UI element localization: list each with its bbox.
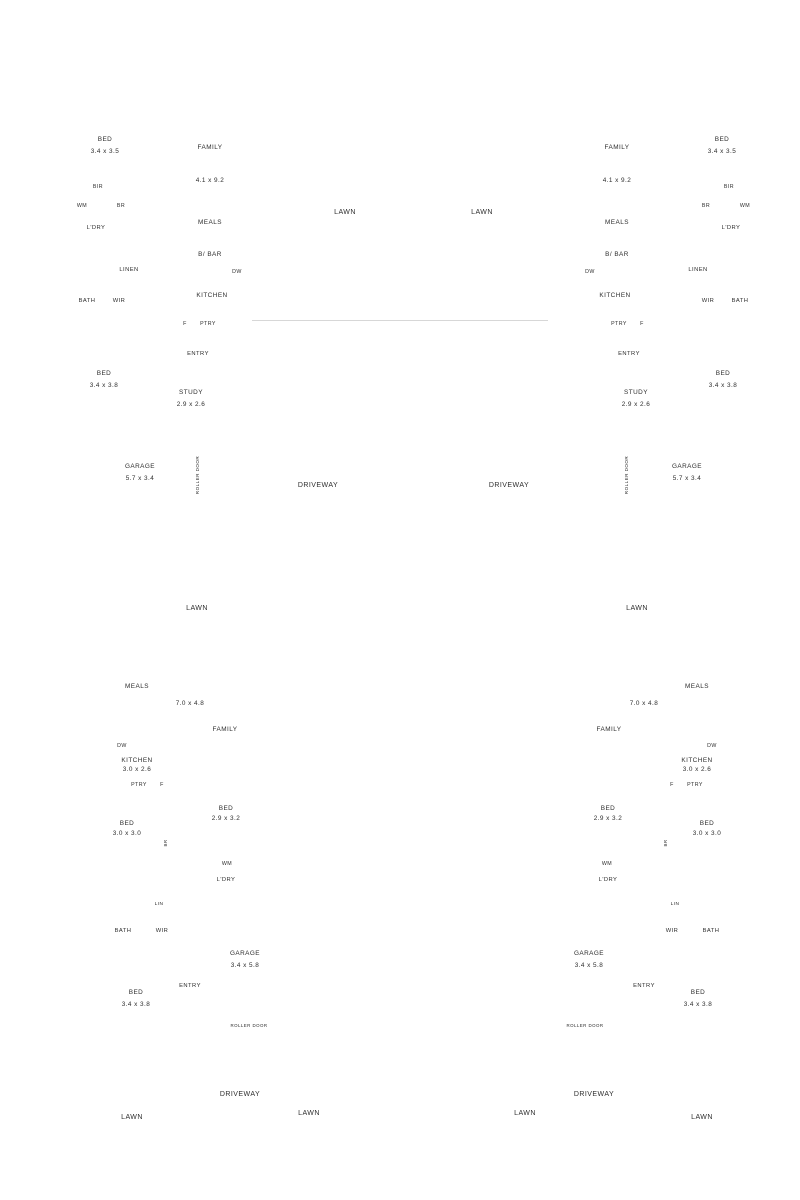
room-labels: BED3.4 x 3.5FAMILY4.1 x 9.2MEALSB/ BARDW…	[471, 136, 750, 494]
room-label: BED	[98, 136, 113, 143]
room-label: DW	[117, 743, 127, 749]
floor-plan-top-right: BED3.4 x 3.5FAMILY4.1 x 9.2MEALSB/ BARDW…	[426, 64, 786, 541]
room-label: FAMILY	[597, 726, 622, 733]
room-label: LAWN	[691, 1114, 713, 1121]
room-label: LAWN	[471, 209, 493, 216]
room-label: PTRY	[200, 321, 216, 327]
room-label: BATH	[703, 928, 720, 934]
floor-plan-top-left: BED3.4 x 3.5FAMILY4.1 x 9.2MEALSB/ BARDW…	[41, 64, 401, 541]
room-label: GARAGE	[125, 463, 155, 470]
room-label: WIR	[156, 928, 169, 934]
room-label: STUDY	[179, 389, 203, 396]
room-label: BED	[97, 370, 112, 377]
room-label: F	[640, 321, 644, 327]
room-label: 2.9 x 3.2	[594, 815, 623, 822]
room-label: BR	[663, 840, 668, 847]
room-label: 4.1 x 9.2	[603, 177, 632, 184]
room-label: 3.4 x 5.8	[575, 962, 604, 969]
room-label: BR	[702, 203, 710, 209]
room-label: WM	[740, 203, 750, 209]
room-label: GARAGE	[574, 950, 604, 957]
room-labels: BED3.4 x 3.5FAMILY4.1 x 9.2MEALSB/ BARDW…	[77, 136, 356, 494]
room-label: MEALS	[125, 683, 149, 690]
room-label: ENTRY	[179, 983, 201, 989]
room-label: DRIVEWAY	[220, 1091, 260, 1098]
room-label: LIN	[671, 901, 680, 907]
room-label: DRIVEWAY	[298, 482, 338, 489]
room-label: MEALS	[605, 219, 629, 226]
room-label: 5.7 x 3.4	[673, 475, 702, 482]
floor-plan-bottom-left: LAWNMEALS7.0 x 4.8FAMILYDWKITCHEN3.0 x 2…	[68, 574, 343, 1154]
room-label: 4.1 x 9.2	[196, 177, 225, 184]
room-label: BED	[715, 136, 730, 143]
room-label: FAMILY	[198, 144, 223, 151]
room-label: BED	[691, 989, 706, 996]
room-label: DRIVEWAY	[574, 1091, 614, 1098]
room-label: BATH	[115, 928, 132, 934]
room-labels: LAWNMEALS7.0 x 4.8FAMILYDWKITCHEN3.0 x 2…	[113, 605, 320, 1121]
room-label: 7.0 x 4.8	[630, 700, 659, 707]
room-label: ROLLER DOOR	[195, 456, 200, 495]
room-label: WM	[222, 861, 232, 867]
room-label: KITCHEN	[196, 292, 227, 299]
room-label: BR	[117, 203, 125, 209]
room-label: DW	[232, 269, 242, 275]
room-label: GARAGE	[672, 463, 702, 470]
room-label: LAWN	[626, 605, 648, 612]
room-label: WM	[77, 203, 87, 209]
room-label: KITCHEN	[681, 757, 712, 764]
room-label: DW	[585, 269, 595, 275]
room-label: FAMILY	[213, 726, 238, 733]
room-label: 5.7 x 3.4	[126, 475, 155, 482]
room-label: BIR	[724, 184, 734, 190]
room-label: BED	[120, 820, 135, 827]
room-label: ROLLER DOOR	[567, 1023, 604, 1028]
room-label: WIR	[666, 928, 679, 934]
room-label: PTRY	[131, 782, 147, 788]
room-label: ROLLER DOOR	[231, 1023, 268, 1028]
room-label: 7.0 x 4.8	[176, 700, 205, 707]
room-label: B/ BAR	[605, 251, 629, 258]
room-label: BED	[716, 370, 731, 377]
room-label: ENTRY	[633, 983, 655, 989]
room-label: LINEN	[119, 267, 138, 273]
room-label: 2.9 x 3.2	[212, 815, 241, 822]
room-label: LAWN	[186, 605, 208, 612]
room-label: 3.4 x 3.8	[709, 382, 738, 389]
room-label: 3.4 x 5.8	[231, 962, 260, 969]
room-label: L'DRY	[599, 877, 618, 883]
floor-plan-sheet: BED3.4 x 3.5FAMILY4.1 x 9.2MEALSB/ BARDW…	[0, 0, 800, 1200]
room-label: STUDY	[624, 389, 648, 396]
room-label: BIR	[93, 184, 103, 190]
room-label: L'DRY	[722, 225, 741, 231]
room-label: 3.4 x 3.8	[90, 382, 119, 389]
room-label: 2.9 x 2.6	[622, 401, 651, 408]
room-label: BED	[601, 805, 616, 812]
scan-seam-divider	[252, 320, 548, 321]
room-label: LINEN	[688, 267, 707, 273]
room-label: WIR	[113, 298, 126, 304]
room-label: F	[183, 321, 187, 327]
room-label: 3.0 x 3.0	[113, 830, 142, 837]
room-label: ENTRY	[618, 351, 640, 357]
room-label: F	[160, 782, 164, 788]
room-label: LAWN	[298, 1110, 320, 1117]
room-label: 2.9 x 2.6	[177, 401, 206, 408]
room-label: KITCHEN	[599, 292, 630, 299]
room-label: LIN	[155, 901, 164, 907]
room-label: F	[670, 782, 674, 788]
room-label: PTRY	[611, 321, 627, 327]
room-label: 3.4 x 3.8	[684, 1001, 713, 1008]
room-label: LAWN	[121, 1114, 143, 1121]
floor-plan-bottom-right: LAWNMEALS7.0 x 4.8FAMILYDWKITCHEN3.0 x 2…	[491, 574, 766, 1154]
room-label: L'DRY	[217, 877, 236, 883]
room-label: B/ BAR	[198, 251, 222, 258]
room-label: BR	[163, 840, 168, 847]
room-labels: LAWNMEALS7.0 x 4.8FAMILYDWKITCHEN3.0 x 2…	[514, 605, 721, 1121]
room-label: KITCHEN	[121, 757, 152, 764]
room-label: WIR	[702, 298, 715, 304]
room-label: PTRY	[687, 782, 703, 788]
room-label: BATH	[732, 298, 749, 304]
room-label: BED	[219, 805, 234, 812]
room-label: ENTRY	[187, 351, 209, 357]
room-label: LAWN	[514, 1110, 536, 1117]
room-label: 3.4 x 3.8	[122, 1001, 151, 1008]
room-label: BED	[700, 820, 715, 827]
room-label: DW	[707, 743, 717, 749]
room-label: ROLLER DOOR	[624, 456, 629, 495]
room-label: BATH	[79, 298, 96, 304]
room-label: WM	[602, 861, 612, 867]
room-label: FAMILY	[605, 144, 630, 151]
room-label: 3.0 x 2.6	[123, 766, 152, 773]
room-label: MEALS	[685, 683, 709, 690]
room-label: 3.4 x 3.5	[708, 148, 737, 155]
room-label: 3.0 x 2.6	[683, 766, 712, 773]
room-label: LAWN	[334, 209, 356, 216]
room-label: BED	[129, 989, 144, 996]
room-label: DRIVEWAY	[489, 482, 529, 489]
room-label: 3.4 x 3.5	[91, 148, 120, 155]
room-label: L'DRY	[87, 225, 106, 231]
room-label: GARAGE	[230, 950, 260, 957]
room-label: MEALS	[198, 219, 222, 226]
room-label: 3.0 x 3.0	[693, 830, 722, 837]
